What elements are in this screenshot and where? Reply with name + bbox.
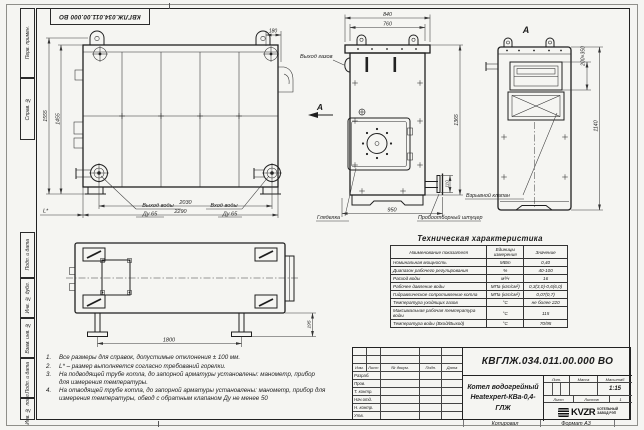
dim-1800: 1800 bbox=[163, 338, 176, 344]
fold-mark-top bbox=[169, 3, 170, 9]
table-row: Диапазон рабочего регулирования%40-100 bbox=[391, 267, 568, 275]
foot-plate-left bbox=[88, 332, 108, 337]
dim-hatch-200x350: 200×350 bbox=[581, 46, 587, 67]
top-door bbox=[101, 259, 132, 296]
fold-mark-bottom bbox=[158, 421, 159, 427]
margin-box-perv-primen: Перв. примен. bbox=[20, 8, 35, 78]
section-a-mark: А bbox=[316, 102, 323, 112]
dim-1140: 1140 bbox=[594, 120, 600, 131]
dim-110: 110 bbox=[445, 180, 450, 188]
rear-boiler-body bbox=[486, 38, 571, 210]
signature-row: Утв. bbox=[353, 412, 462, 419]
rear-dimensions: 200×350 1140 bbox=[562, 46, 603, 210]
spec-table: Наименование показателя Единицы измерени… bbox=[390, 245, 568, 328]
spec-header-row: Наименование показателя Единицы измерени… bbox=[391, 246, 568, 259]
dim-1555: 1555 bbox=[43, 110, 49, 122]
table-row: Номинальная мощностьМВт0,40 bbox=[391, 259, 568, 267]
side-labels: Выход газов А Гляделка Пробоотборный шту… bbox=[300, 54, 483, 221]
table-row: Расход водым³/ч16 bbox=[391, 275, 568, 283]
front-dimensions: 180 1555 1455 2030 2290 L* bbox=[40, 29, 281, 219]
signature-row: Н. контр. bbox=[353, 404, 462, 412]
table-row: Температура воды (Вход/Выход)°С70/95 bbox=[391, 320, 568, 328]
dim-1455: 1455 bbox=[56, 113, 62, 125]
signature-row: Нач.отд. bbox=[353, 396, 462, 404]
spec-table-title: Техническая характеристика bbox=[390, 234, 570, 243]
margin-box-inv-dubl: Инв. № дубл. bbox=[20, 278, 35, 318]
spec-col-value: Значение bbox=[524, 246, 568, 259]
sight-glass-label: Гляделка bbox=[317, 215, 340, 221]
water-inlet-label: Вход воды bbox=[210, 203, 237, 209]
lifting-lug-left bbox=[90, 31, 104, 45]
bottom-boiler-body bbox=[66, 243, 298, 337]
spec-col-units: Единицы измерения bbox=[487, 246, 524, 259]
dim-195: 195 bbox=[307, 320, 313, 328]
drawing-sheet: Перв. примен. Справ. № Подп. и дата Инв.… bbox=[0, 0, 644, 430]
gas-outlet-stub bbox=[345, 58, 350, 72]
table-row: Рабочее давление водыМПа (кгс/см²)0,3(3,… bbox=[391, 283, 568, 291]
manufacturer-logo: KVZR КОТЕЛЬНЫЙ ЗАВОД РЭП bbox=[544, 403, 632, 421]
copied-label: Копировал bbox=[470, 421, 540, 427]
notes-block: 1.Все размеры для справок, допустимые от… bbox=[46, 354, 326, 403]
dim-2290: 2290 bbox=[173, 209, 187, 215]
dim-l-star: L* bbox=[43, 209, 49, 215]
signature-row: Пров. bbox=[353, 380, 462, 388]
foot-plate-right bbox=[232, 332, 252, 337]
rear-view: А bbox=[460, 12, 638, 230]
footer-divider bbox=[614, 420, 615, 427]
margin-box-inv-podl: Инв. № подл. bbox=[20, 398, 35, 420]
dim-760: 760 bbox=[383, 22, 392, 28]
explosion-valve-label: Взрывной клапан bbox=[466, 192, 510, 199]
margin-box-vzam-inv: Взам. инв. № bbox=[20, 318, 35, 358]
gas-outlet-label: Выход газов bbox=[300, 54, 333, 60]
signature-header-row: Изм. Лист № докум. Подп. Дата bbox=[353, 364, 462, 372]
spec-col-name: Наименование показателя bbox=[391, 246, 487, 259]
dim-180: 180 bbox=[269, 29, 278, 35]
water-outlet-dn: Ду 65 bbox=[142, 211, 158, 217]
water-outlet-nozzle bbox=[76, 163, 109, 183]
sampling-stub bbox=[425, 174, 443, 196]
format-label: Формат А3 bbox=[546, 421, 606, 427]
dim-950: 950 bbox=[387, 208, 397, 214]
water-inlet-dn: Ду 65 bbox=[222, 211, 238, 217]
kvzr-logo-text: KVZR bbox=[571, 407, 595, 418]
foot-left bbox=[88, 187, 103, 194]
foot-right bbox=[263, 187, 278, 194]
dim-840: 840 bbox=[383, 12, 392, 18]
signature-row: Разраб. bbox=[353, 372, 462, 380]
signature-area: Изм. Лист № докум. Подп. Дата Разраб. Пр… bbox=[353, 348, 463, 419]
flue-bracket bbox=[278, 67, 293, 92]
rear-labels: Взрывной клапан bbox=[465, 113, 557, 199]
bottom-dimensions: 1800 195 bbox=[98, 313, 317, 347]
footer-divider bbox=[540, 420, 541, 427]
note-1: 1.Все размеры для справок, допустимые от… bbox=[46, 354, 326, 362]
bottom-view: 1800 195 bbox=[42, 232, 342, 352]
margin-box-podp-data-1: Подп. и дата bbox=[20, 232, 35, 278]
side-skirt bbox=[352, 195, 423, 205]
section-arrow bbox=[308, 112, 318, 118]
note-4: 4.На отводящей трубе котла, до запорной … bbox=[46, 387, 326, 402]
side-boiler-body bbox=[345, 35, 443, 205]
margin-box-sprav-no: Справ. № bbox=[20, 78, 35, 140]
title-block: Изм. Лист № докум. Подп. Дата Разраб. Пр… bbox=[352, 347, 631, 420]
spec-table-block: Техническая характеристика Наименование … bbox=[390, 234, 570, 328]
scale-value: 1:15 bbox=[598, 383, 632, 395]
burner-door bbox=[348, 118, 413, 170]
footer-divider bbox=[463, 420, 464, 427]
title-block-right: Лит. Масса Масштаб 1:15 Лист Листов 1 KV… bbox=[544, 376, 632, 421]
front-view: 180 1555 1455 2030 2290 L* Выход воды Ду… bbox=[38, 22, 306, 236]
signature-row: Т. контр. bbox=[353, 388, 462, 396]
table-row: Гидравлическое сопротивление котлаМПа (к… bbox=[391, 291, 568, 299]
sheet-row: Лист Листов 1 bbox=[544, 396, 632, 403]
kvzr-logo-icon bbox=[558, 408, 569, 417]
product-name: Котел водогрейный Heatexpert-КВа-0,4-ГЛЖ bbox=[463, 376, 544, 421]
note-3: 3.На подводящей трубе котла, до запорной… bbox=[46, 371, 326, 386]
water-outlet-label: Выход воды bbox=[142, 203, 173, 209]
note-2: 2.L* – размер выполняется согласно требо… bbox=[46, 363, 326, 371]
view-a-mark: А bbox=[522, 25, 530, 35]
doc-number: КВГЛЖ.034.011.00.000 ВО bbox=[463, 348, 632, 376]
lit-mass-scale-header: Лит. Масса Масштаб bbox=[544, 376, 632, 383]
dim-2030: 2030 bbox=[178, 200, 192, 206]
lit-mass-scale-values: 1:15 bbox=[544, 383, 632, 396]
front-boiler-body bbox=[74, 31, 293, 194]
burner-hatch bbox=[510, 62, 562, 90]
rear-skirt bbox=[516, 206, 552, 211]
table-row: Максимальная рабочая температура воды°С1… bbox=[391, 307, 568, 320]
table-row: Температура уходящих газов°Сне более 220 bbox=[391, 299, 568, 307]
corner-stamp-text: КВГЛЖ.034.011.00.000 ВО bbox=[59, 13, 141, 20]
kvzr-logo-caption: КОТЕЛЬНЫЙ ЗАВОД РЭП bbox=[597, 408, 618, 415]
